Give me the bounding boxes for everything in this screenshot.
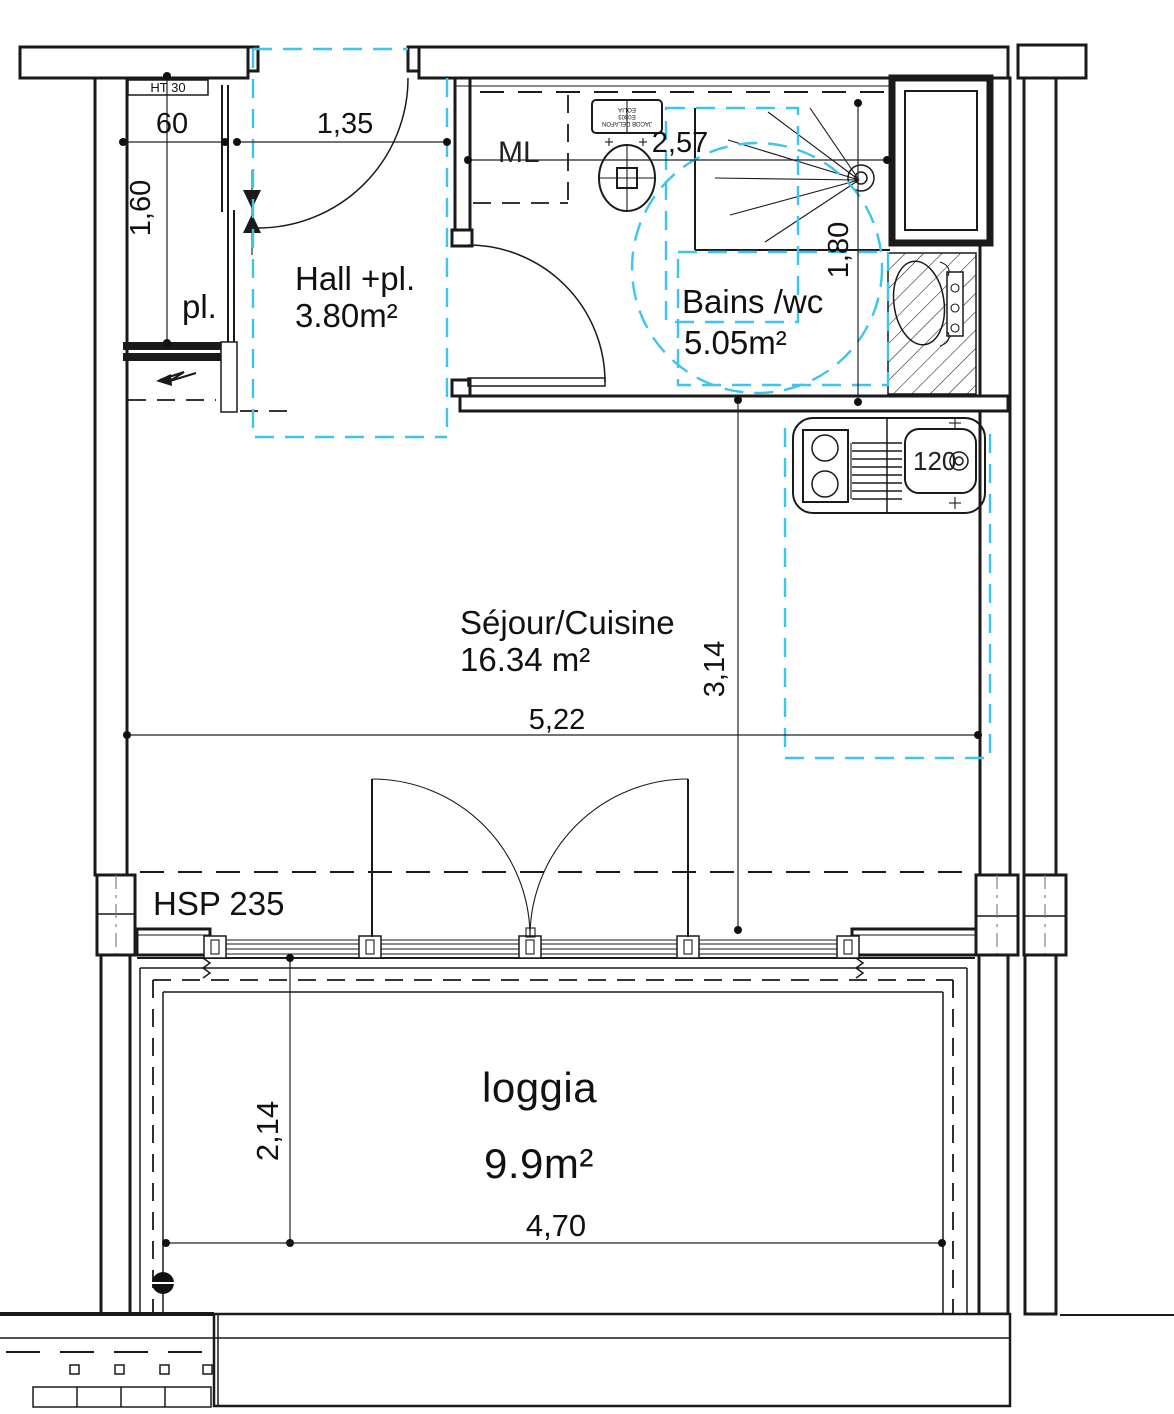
living-name: Séjour/Cuisine bbox=[460, 604, 675, 641]
dim-closet-depth: 60 bbox=[156, 108, 188, 140]
shower-icon bbox=[695, 108, 890, 250]
facade-band bbox=[0, 1314, 1010, 1407]
dim-loggia-depth: 2,14 bbox=[250, 1101, 285, 1161]
lintel-height-label: HT 30 bbox=[150, 80, 185, 95]
neighbour-pier bbox=[1024, 875, 1066, 955]
wc-brand-line3: EOLIA bbox=[618, 106, 636, 112]
dim-closet-length: 1,60 bbox=[125, 180, 157, 236]
hall-area: 3.80m² bbox=[295, 297, 398, 334]
bath-name: Bains /wc bbox=[682, 283, 823, 320]
bath-area: 5.05m² bbox=[684, 324, 787, 361]
washbasin-icon bbox=[888, 253, 976, 394]
wc-brand-line1: JACOB DELAFON bbox=[602, 120, 652, 126]
floor-plan-sheet: JACOB DELAFON E0303 EOLIA bbox=[0, 0, 1174, 1414]
entry-door bbox=[243, 78, 408, 255]
wc-brand-line2: E0303 bbox=[618, 113, 636, 119]
ceiling-height-label: HSP 235 bbox=[153, 885, 284, 922]
exterior-walls bbox=[20, 45, 1174, 1315]
dim-loggia-width: 4,70 bbox=[526, 1208, 586, 1243]
closet-label: pl. bbox=[182, 288, 217, 325]
bay-window bbox=[137, 779, 975, 978]
loggia-name: loggia bbox=[482, 1064, 597, 1111]
electric-arrow-icon bbox=[156, 372, 196, 386]
hall-name: Hall +pl. bbox=[295, 260, 415, 297]
dim-bath-width: 2,57 bbox=[652, 127, 708, 159]
washing-machine-label: ML bbox=[498, 136, 540, 169]
dim-living-depth: 3,14 bbox=[699, 641, 731, 697]
kitchenette-icon: 120 bbox=[793, 417, 985, 513]
dim-living-width: 5,22 bbox=[529, 704, 585, 736]
sink-width-label: 120 bbox=[913, 446, 956, 476]
bathroom-door bbox=[468, 245, 605, 386]
loggia-area: 9.9m² bbox=[484, 1140, 594, 1187]
floor-plan-drawing: JACOB DELAFON E0303 EOLIA bbox=[0, 0, 1174, 1414]
left-pier bbox=[97, 875, 135, 955]
duct-shaft bbox=[892, 78, 990, 243]
dim-bath-depth: 1,80 bbox=[823, 222, 855, 278]
dim-entry-width: 1,35 bbox=[317, 108, 373, 140]
french-doors bbox=[372, 779, 688, 937]
right-pier bbox=[976, 875, 1018, 955]
living-area: 16.34 m² bbox=[460, 641, 590, 678]
window-mullions bbox=[204, 936, 859, 958]
